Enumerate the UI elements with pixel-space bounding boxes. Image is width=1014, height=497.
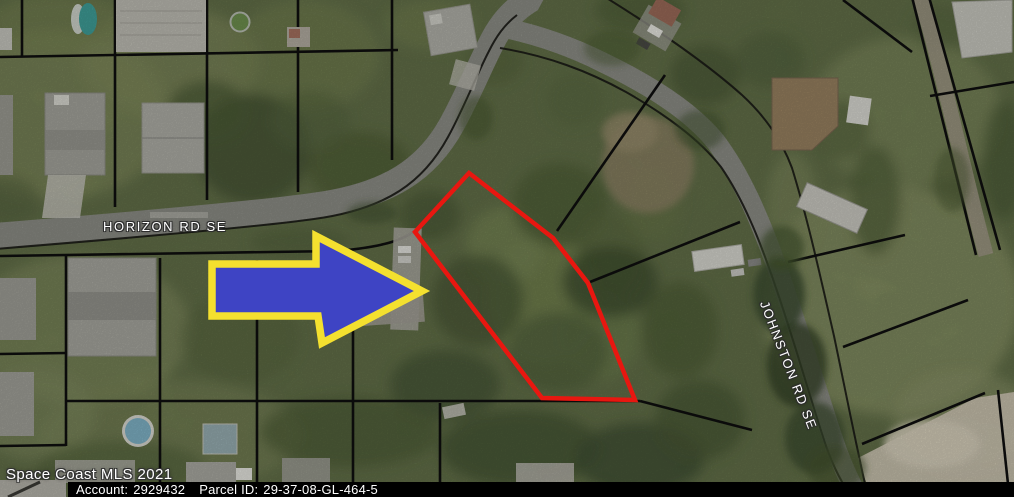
account-value: 2929432 [133, 482, 185, 497]
parcel-id-value: 29-37-08-GL-464-5 [263, 482, 378, 497]
parcel-id-label: Parcel ID: [199, 482, 258, 497]
aerial-map [0, 0, 1014, 497]
street-label-horizon: HORIZON RD SE [103, 219, 227, 234]
mls-watermark: Space Coast MLS 2021 [6, 466, 172, 483]
photo-grain [0, 0, 1014, 497]
account-label: Account: [76, 482, 128, 497]
footer-bar: Account: 2929432 Parcel ID: 29-37-08-GL-… [68, 482, 1014, 497]
parcel-info: Parcel ID: 29-37-08-GL-464-5 [199, 482, 378, 497]
account-info: Account: 2929432 [76, 482, 185, 497]
mls-aerial-parcel-map: HORIZON RD SE JOHNSTON RD SE Space Coast… [0, 0, 1014, 497]
